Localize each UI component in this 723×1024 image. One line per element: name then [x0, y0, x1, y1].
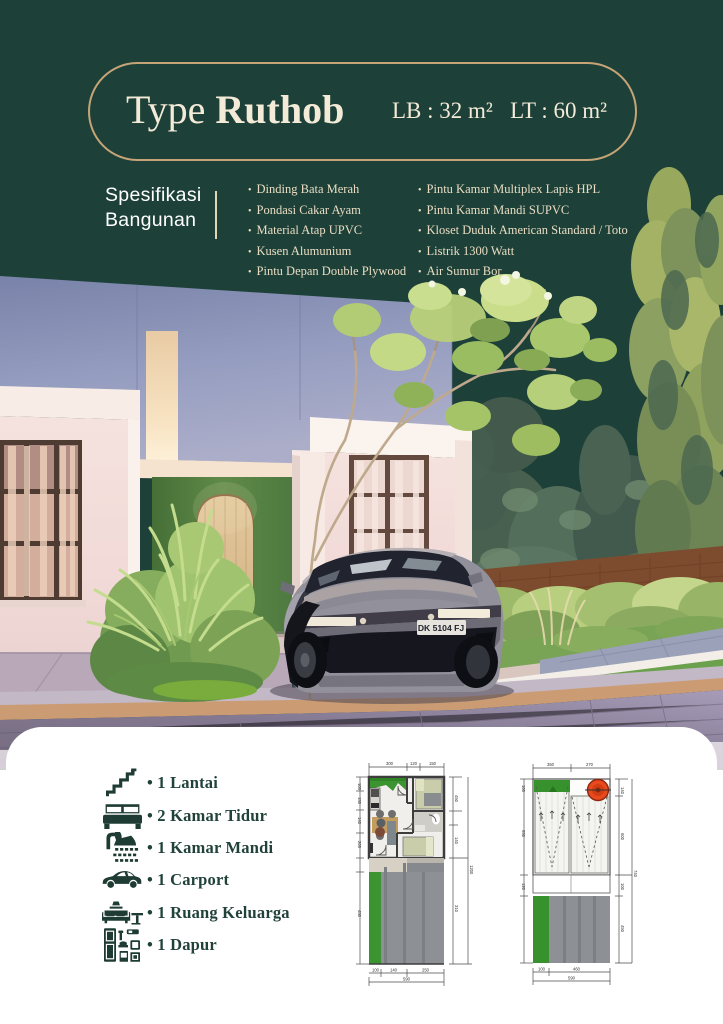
svg-text:300: 300	[386, 761, 394, 766]
svg-text:DK 5104 FJ: DK 5104 FJ	[418, 623, 465, 633]
svg-text:140: 140	[357, 817, 362, 825]
svg-text:140: 140	[620, 787, 625, 795]
svg-text:600: 600	[620, 833, 625, 841]
svg-text:450: 450	[454, 795, 459, 803]
svg-text:100: 100	[538, 967, 546, 972]
svg-text:350: 350	[547, 762, 555, 767]
svg-text:310: 310	[454, 905, 459, 913]
svg-text:105: 105	[357, 783, 362, 791]
svg-text:150: 150	[357, 797, 362, 805]
svg-text:450: 450	[357, 910, 362, 918]
svg-text:740: 740	[633, 870, 638, 878]
svg-text:590: 590	[403, 977, 411, 982]
svg-text:150: 150	[429, 761, 437, 766]
svg-text:205: 205	[357, 841, 362, 849]
svg-text:270: 270	[586, 762, 594, 767]
svg-text:120: 120	[410, 761, 418, 766]
svg-text:650: 650	[521, 830, 526, 838]
svg-text:1200: 1200	[469, 865, 474, 875]
svg-text:450: 450	[620, 925, 625, 933]
svg-text:140: 140	[454, 837, 459, 845]
svg-text:590: 590	[568, 976, 576, 981]
svg-text:100: 100	[372, 968, 380, 973]
svg-text:100: 100	[620, 883, 625, 891]
svg-text:120: 120	[521, 883, 526, 891]
svg-text:100: 100	[521, 785, 526, 793]
svg-text:460: 460	[573, 967, 581, 972]
svg-text:140: 140	[390, 968, 398, 973]
svg-text:250: 250	[422, 968, 430, 973]
